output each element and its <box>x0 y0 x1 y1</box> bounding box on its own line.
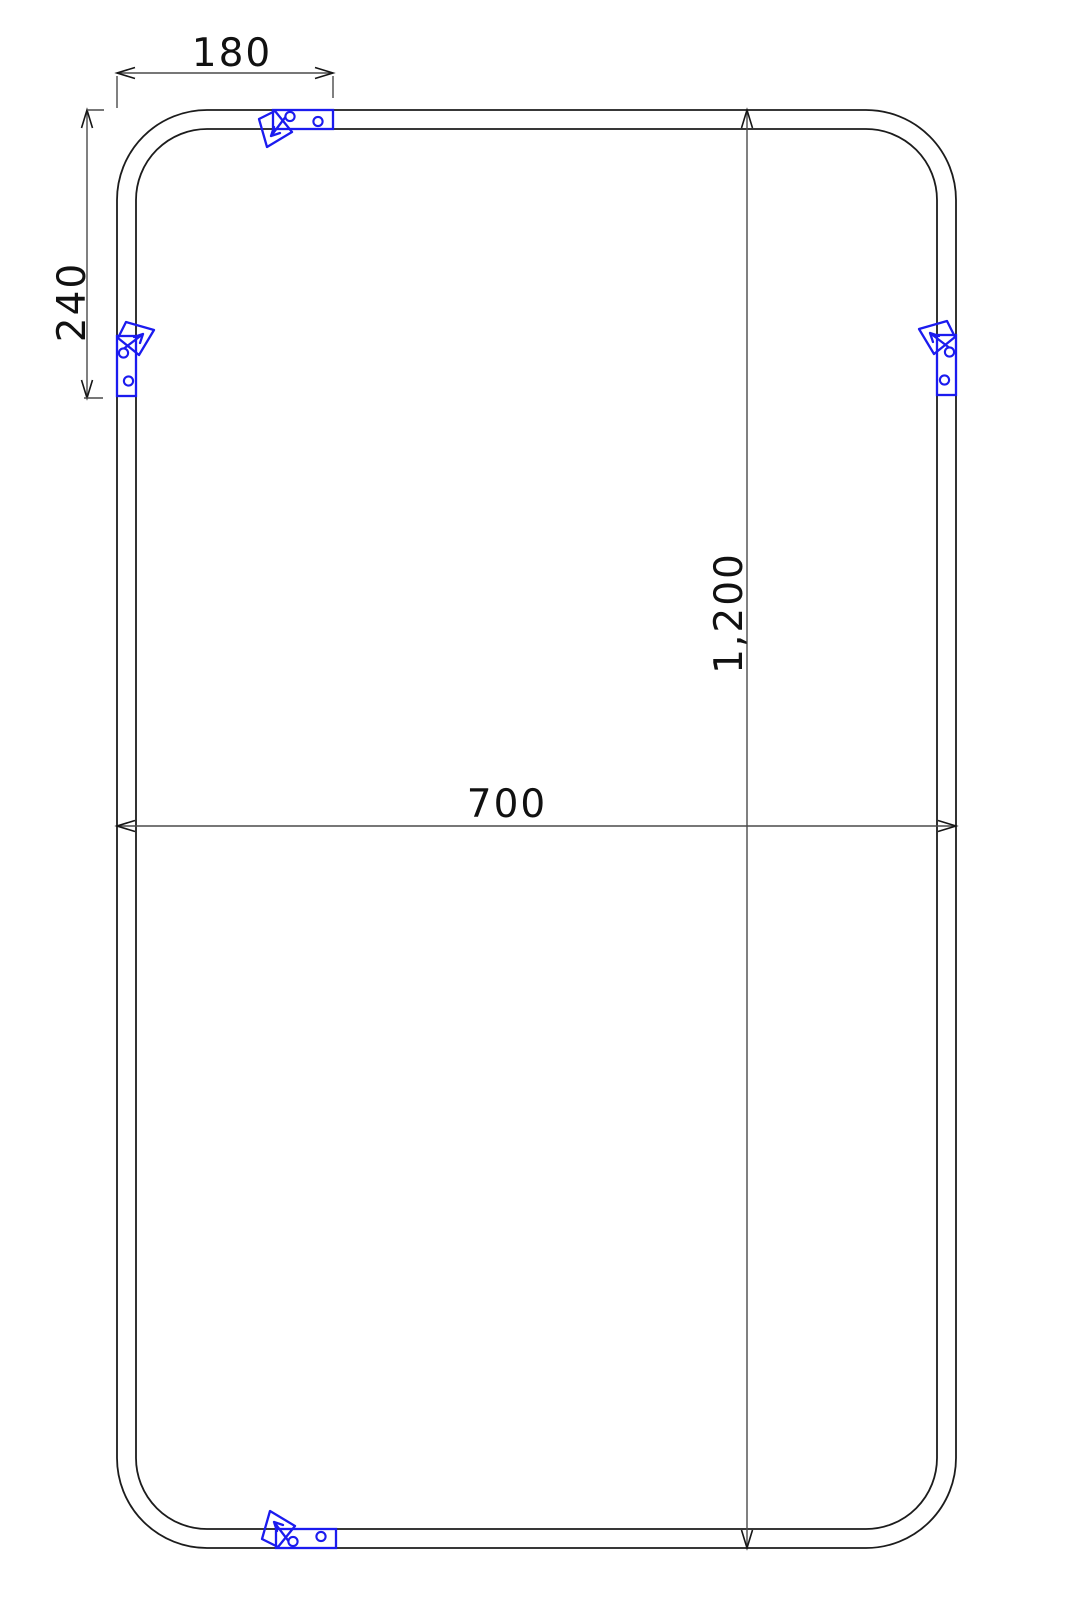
dimension-label-1200: 1,200 <box>707 552 752 674</box>
dimension-left-height: 240 <box>50 110 104 398</box>
dimension-label-240: 240 <box>50 262 95 342</box>
dimension-overall-width: 700 <box>117 782 956 832</box>
frame-outer-edge <box>117 110 956 1548</box>
dimension-label-180: 180 <box>192 31 272 76</box>
frame-inner-edge <box>136 129 937 1529</box>
dimension-top-width: 180 <box>117 31 333 108</box>
dimension-overall-height: 1,200 <box>707 110 753 1548</box>
frame-outline <box>117 110 956 1548</box>
cad-drawing: 180 240 1,200 700 <box>0 0 1068 1600</box>
dimension-label-700: 700 <box>467 782 547 827</box>
